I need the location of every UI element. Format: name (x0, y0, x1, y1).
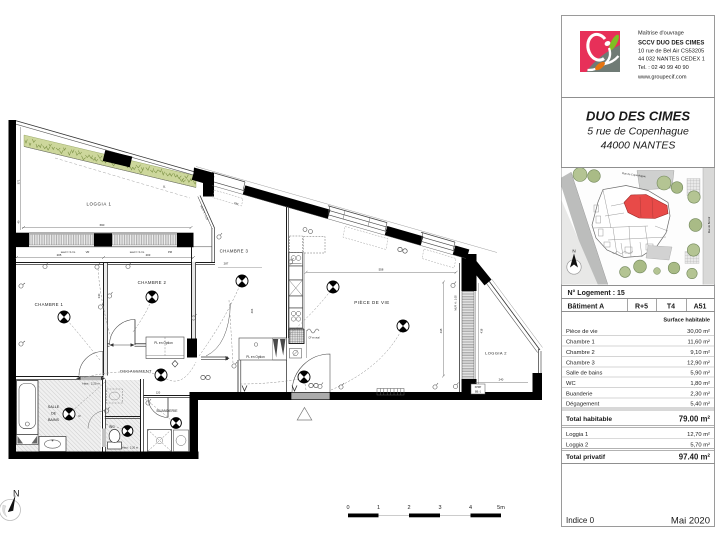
svg-text:N° Logement : 15: N° Logement : 15 (568, 289, 625, 297)
svg-text:79.00 m²: 79.00 m² (679, 415, 711, 424)
svg-text:Dégagement: Dégagement (566, 402, 600, 408)
svg-text:240: 240 (499, 378, 504, 382)
svg-text:418: 418 (480, 328, 484, 333)
svg-text:Haut : 2.20 m: Haut : 2.20 m (122, 446, 139, 450)
svg-text:406: 406 (250, 308, 254, 313)
svg-text:2,30 m²: 2,30 m² (690, 392, 710, 398)
svg-text:Maîtrise d'ouvrage: Maîtrise d'ouvrage (638, 31, 684, 37)
svg-text:371: 371 (17, 179, 21, 184)
svg-text:PIÈCE DE VIE: PIÈCE DE VIE (354, 299, 390, 305)
svg-text:PL en Option: PL en Option (154, 341, 173, 345)
svg-text:11,60 m²: 11,60 m² (688, 340, 711, 346)
svg-text:203: 203 (146, 253, 151, 257)
svg-text:2: 2 (407, 505, 410, 511)
svg-text:12,70 m²: 12,70 m² (687, 432, 710, 438)
svg-text:Tel. : 02 40 99 40 90: Tel. : 02 40 99 40 90 (638, 65, 689, 71)
svg-text:Loggia 1: Loggia 1 (566, 432, 588, 438)
svg-text:30,00 m²: 30,00 m² (687, 329, 710, 335)
svg-text:1,80 m²: 1,80 m² (690, 381, 710, 387)
svg-text:DUO DES CIMES: DUO DES CIMES (586, 109, 690, 124)
svg-text:Chambre 3: Chambre 3 (566, 361, 595, 367)
svg-text:3: 3 (438, 505, 441, 511)
svg-text:R: R (79, 414, 81, 418)
svg-text:WC: WC (109, 425, 115, 429)
svg-text:WC: WC (566, 381, 576, 387)
svg-text:LOGGIA 2: LOGGIA 2 (485, 351, 507, 356)
svg-text:CHAMBRE 1: CHAMBRE 1 (35, 302, 64, 307)
svg-text:12,90 m²: 12,90 m² (687, 361, 710, 367)
svg-text:BAINS: BAINS (48, 418, 60, 422)
svg-text:BUANDERIE: BUANDERIE (157, 409, 179, 413)
svg-text:VR: VR (86, 250, 90, 254)
svg-text:44 032 NANTES CEDEX 1: 44 032 NANTES CEDEX 1 (638, 57, 705, 63)
svg-text:Rue de Bel Air: Rue de Bel Air (707, 217, 711, 234)
svg-text:V.: V. (163, 185, 166, 189)
svg-text:CF en aval: CF en aval (308, 338, 320, 340)
svg-text:BB:-1: BB:-1 (475, 391, 482, 394)
svg-text:PL en Option: PL en Option (246, 355, 265, 359)
svg-text:120: 120 (156, 391, 161, 395)
svg-text:seuil = 3 cm: seuil = 3 cm (130, 250, 145, 254)
svg-text:Total habitable: Total habitable (566, 416, 612, 423)
svg-text:T4: T4 (667, 304, 675, 311)
svg-text:4: 4 (469, 505, 472, 511)
svg-text:0: 0 (346, 505, 349, 511)
svg-text:R+5: R+5 (635, 304, 648, 311)
svg-text:5m: 5m (497, 505, 505, 511)
svg-text:Chambre 1: Chambre 1 (566, 340, 595, 346)
svg-text:97.40 m²: 97.40 m² (679, 453, 711, 462)
svg-text:Bâtiment A: Bâtiment A (568, 304, 605, 311)
svg-text:DE: DE (51, 412, 57, 416)
svg-text:44000 NANTES: 44000 NANTES (601, 140, 676, 152)
svg-text:Salle de bains: Salle de bains (566, 371, 603, 377)
svg-text:N: N (13, 489, 20, 499)
svg-text:Loggia 2: Loggia 2 (566, 443, 588, 449)
svg-text:N: N (572, 249, 575, 254)
svg-text:LOGGIA 1: LOGGIA 1 (86, 202, 111, 207)
svg-text:Indice 0: Indice 0 (566, 516, 595, 525)
svg-text:5 rue de Copenhague: 5 rue de Copenhague (587, 126, 689, 138)
svg-text:205: 205 (57, 253, 62, 257)
svg-text:1: 1 (377, 505, 380, 511)
svg-text:Total privatif: Total privatif (566, 454, 606, 461)
svg-text:438: 438 (439, 328, 443, 333)
svg-text:Buanderie: Buanderie (566, 392, 592, 398)
svg-text:9,10 m²: 9,10 m² (690, 350, 710, 356)
svg-text:5,70 m²: 5,70 m² (690, 443, 710, 449)
svg-text:Pièce de vie: Pièce de vie (566, 329, 598, 335)
svg-text:CHAMBRE 3: CHAMBRE 3 (220, 249, 249, 254)
svg-text:287: 287 (224, 262, 229, 266)
svg-text:MUR H : 1.08: MUR H : 1.08 (455, 295, 458, 311)
svg-text:DEGAGEMENT: DEGAGEMENT (120, 369, 152, 374)
svg-text:A51: A51 (694, 304, 707, 311)
svg-text:SCCV DUO DES CIMES: SCCV DUO DES CIMES (638, 41, 704, 47)
svg-text:5,90 m²: 5,90 m² (690, 371, 710, 377)
svg-text:Chambre 2: Chambre 2 (566, 350, 595, 356)
svg-text:690: 690 (100, 223, 105, 227)
svg-text:KPRP: KPRP (475, 386, 482, 389)
svg-text:558: 558 (379, 268, 384, 272)
svg-text:10 rue de Bel Air CS53205: 10 rue de Bel Air CS53205 (638, 49, 704, 55)
svg-text:5,40 m²: 5,40 m² (690, 402, 710, 408)
svg-text:340: 340 (97, 293, 101, 298)
svg-text:SALLE: SALLE (48, 405, 60, 409)
svg-text:CHAMBRE 2: CHAMBRE 2 (138, 280, 167, 285)
svg-text:www.groupecif.com: www.groupecif.com (637, 75, 687, 81)
svg-text:seuil = 3 cm: seuil = 3 cm (61, 250, 76, 254)
svg-text:Surface habitable: Surface habitable (663, 318, 710, 324)
svg-text:Haut : 2.20 m: Haut : 2.20 m (82, 381, 100, 385)
svg-text:Mai 2020: Mai 2020 (671, 516, 710, 527)
